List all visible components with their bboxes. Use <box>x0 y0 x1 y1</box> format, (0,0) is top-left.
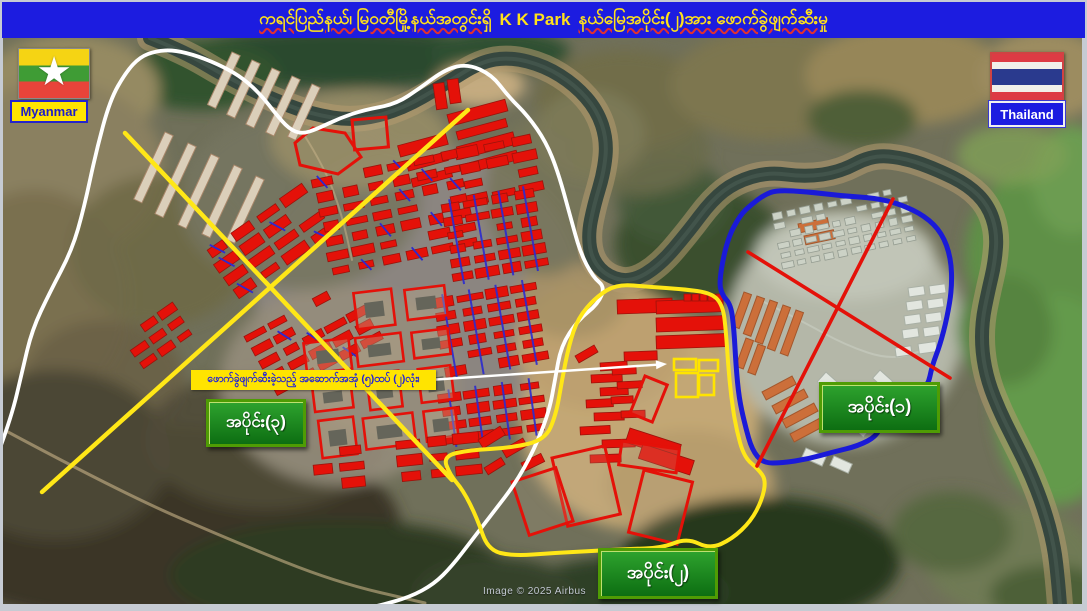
myanmar-flag: ★ <box>18 48 90 99</box>
page-title-burmese-2: နယ်မြေအပိုင်း(၂)အား ဖောက်ခွဲဖျက်ဆီးမှု <box>578 8 827 33</box>
myanmar-star-icon: ★ <box>36 52 72 92</box>
slide: ကရင်ပြည်နယ်၊ မြဝတီမြို့နယ်အတွင်းရှိ K K … <box>0 0 1087 611</box>
section-3-label: အပိုင်း(၃) <box>206 399 306 447</box>
map-area <box>3 38 1082 604</box>
page-title-kkpark: K K Park <box>500 10 571 30</box>
title-bar: ကရင်ပြည်နယ်၊ မြဝတီမြို့နယ်အတွင်းရှိ K K … <box>2 2 1085 38</box>
section-1-label: အပိုင်း(၁) <box>819 382 940 433</box>
myanmar-flag-label: Myanmar <box>10 100 88 123</box>
page-title-burmese-1: ကရင်ပြည်နယ်၊ မြဝတီမြို့နယ်အတွင်းရှိ <box>259 8 491 33</box>
imagery-credit: Image © 2025 Airbus <box>483 586 586 597</box>
thailand-flag <box>990 52 1064 102</box>
destroyed-buildings-label: ဖောက်ခွဲဖျက်ဆီးခဲ့သည့် အဆောက်အအုံ (၅)ထပ်… <box>191 370 436 390</box>
thailand-flag-label: Thailand <box>989 101 1065 127</box>
section-2-label: အပိုင်း(၂) <box>598 548 718 599</box>
satellite-map <box>3 38 1082 604</box>
